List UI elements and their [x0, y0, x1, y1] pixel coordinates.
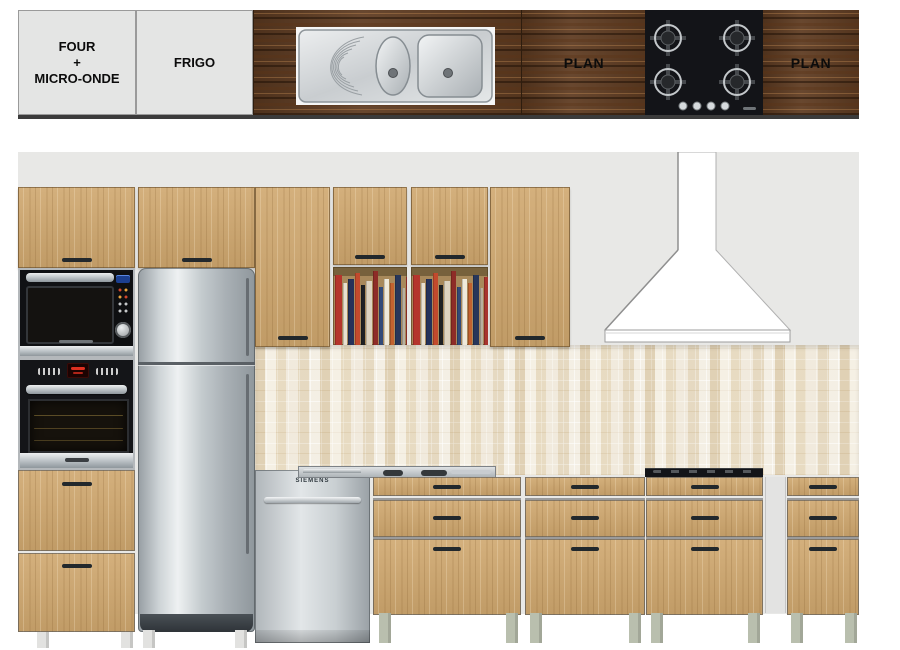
oven-knob-marks-right — [96, 368, 118, 375]
cabinet-leg — [651, 613, 663, 643]
wall-cabinet-over-fridge — [138, 187, 255, 268]
microwave-control-panel — [114, 272, 132, 354]
cabinet-handle — [435, 255, 465, 259]
drawer-handle — [571, 485, 599, 489]
built-in-oven — [18, 358, 135, 470]
dishwasher-kick — [255, 630, 370, 643]
plan-strip-front-edge — [18, 115, 859, 119]
microwave-display — [116, 275, 130, 283]
fridge-door-divider — [138, 362, 255, 365]
microwave-knob — [115, 322, 131, 338]
drawer — [787, 537, 859, 615]
faucet-profile — [303, 469, 361, 473]
plan-worktop-right: PLAN — [763, 10, 859, 115]
plan-worktop-left: PLAN — [521, 10, 646, 115]
plan-cell-four-line3: MICRO-ONDE — [34, 71, 119, 87]
wall-cabinet-over-oven — [18, 187, 135, 268]
base-unit-4 — [787, 477, 859, 613]
oven-display-digits2 — [73, 372, 83, 374]
plan-cell-four-line1: FOUR — [59, 39, 96, 55]
wall-cabinet-tall-right — [490, 187, 570, 347]
oven-display — [67, 363, 89, 378]
microwave-window — [26, 286, 114, 344]
drawer-handle — [691, 516, 719, 520]
drawer — [373, 498, 521, 537]
cabinet-leg — [629, 613, 641, 643]
drawer — [525, 498, 645, 537]
drawer-handle — [571, 516, 599, 520]
wall-cabinet-shelf-right-door — [411, 187, 488, 265]
kitchen-design-sheet: FOUR + MICRO-ONDE FRIGO — [0, 0, 900, 650]
cabinet-handle — [278, 336, 308, 340]
drawer-handle — [809, 547, 837, 551]
drawer — [646, 498, 763, 537]
microwave-buttons — [117, 287, 129, 317]
drawer — [373, 537, 521, 615]
drawer-handle — [571, 547, 599, 551]
dishwasher-handle — [264, 497, 361, 503]
sink-bowl-edge — [383, 470, 403, 476]
dishwasher: SIEMENS — [255, 470, 370, 643]
oven-knob-marks-left — [38, 368, 60, 375]
fridge-freezer-handle — [246, 278, 249, 356]
plan-label-right-text: PLAN — [791, 55, 832, 71]
oven-display-digits — [71, 367, 85, 370]
cabinet-leg — [530, 613, 542, 643]
drawer-handle — [433, 516, 461, 520]
filler-panel — [765, 477, 786, 613]
cabinet-leg — [143, 630, 155, 648]
drawer — [525, 537, 645, 615]
drawer — [787, 477, 859, 496]
sink-bowl-edge — [421, 470, 447, 476]
plan-label-left-text: PLAN — [564, 55, 605, 71]
plan-cell-four-micro-onde: FOUR + MICRO-ONDE — [18, 10, 136, 115]
cabinet-handle — [62, 258, 92, 262]
drawer-handle — [809, 485, 837, 489]
plan-cell-frigo: FRIGO — [136, 10, 253, 115]
gas-hob-front-edge — [645, 468, 763, 477]
oven-rack-line — [34, 428, 123, 429]
drawer-handle — [62, 564, 92, 568]
oven-door-window — [28, 399, 129, 453]
cabinet-leg — [37, 632, 49, 648]
plan-cell-frigo-label: FRIGO — [174, 55, 215, 70]
open-shelf-books-right — [411, 267, 488, 345]
built-in-microwave — [18, 268, 135, 358]
base-unit-1 — [373, 477, 521, 613]
base-unit-under-hob — [646, 477, 763, 613]
cooker-hood — [600, 152, 795, 344]
drawer — [373, 477, 521, 496]
oven-rack-line — [34, 440, 123, 441]
wall-cabinet-shelf-left-door — [333, 187, 407, 265]
drawer-handle — [691, 485, 719, 489]
cabinet-leg — [235, 630, 247, 648]
cabinet-leg — [845, 613, 857, 643]
oven-column-drawer-top — [18, 470, 135, 551]
hob-grate-marks — [653, 470, 753, 473]
cabinet-leg — [506, 613, 518, 643]
plan-sink-worktop — [253, 10, 522, 115]
fridge-door-handle — [246, 374, 249, 554]
drawer-handle — [433, 485, 461, 489]
drawer-handle — [62, 482, 92, 486]
base-unit-2 — [525, 477, 645, 613]
open-shelf-books-left — [333, 267, 407, 345]
drawer — [646, 477, 763, 496]
fridge — [138, 268, 255, 632]
cabinet-leg — [791, 613, 803, 643]
gas-hob-burners-icon — [645, 10, 763, 115]
wall-cabinet-tall-left — [255, 187, 330, 347]
cabinet-handle — [182, 258, 212, 262]
oven-rack-line — [34, 415, 123, 416]
sink-rim-highlight — [451, 470, 491, 474]
drawer — [525, 477, 645, 496]
drawer-handle — [809, 516, 837, 520]
cabinet-leg — [748, 613, 760, 643]
oven-column-drawer-bottom — [18, 553, 135, 632]
drawer — [787, 498, 859, 537]
drawer — [646, 537, 763, 615]
plan-strip: FOUR + MICRO-ONDE FRIGO — [18, 10, 859, 115]
cabinet-leg — [379, 613, 391, 643]
gas-hob-top-view — [645, 10, 763, 115]
dishwasher-brand: SIEMENS — [255, 478, 370, 484]
drawer-handle — [433, 547, 461, 551]
plan-cell-four-line2: + — [73, 55, 81, 71]
drawer-handle — [691, 547, 719, 551]
oven-door-handle — [26, 385, 127, 394]
microwave-door-handle — [26, 273, 114, 282]
microwave-bottom-trim — [20, 346, 133, 356]
sink-top-view-icon — [296, 27, 495, 105]
oven-brand-mark — [65, 458, 89, 462]
backsplash-tile — [255, 345, 859, 475]
cabinet-handle — [515, 336, 545, 340]
microwave-brand-mark — [59, 340, 93, 343]
cabinet-leg — [121, 632, 133, 648]
cabinet-handle — [355, 255, 385, 259]
